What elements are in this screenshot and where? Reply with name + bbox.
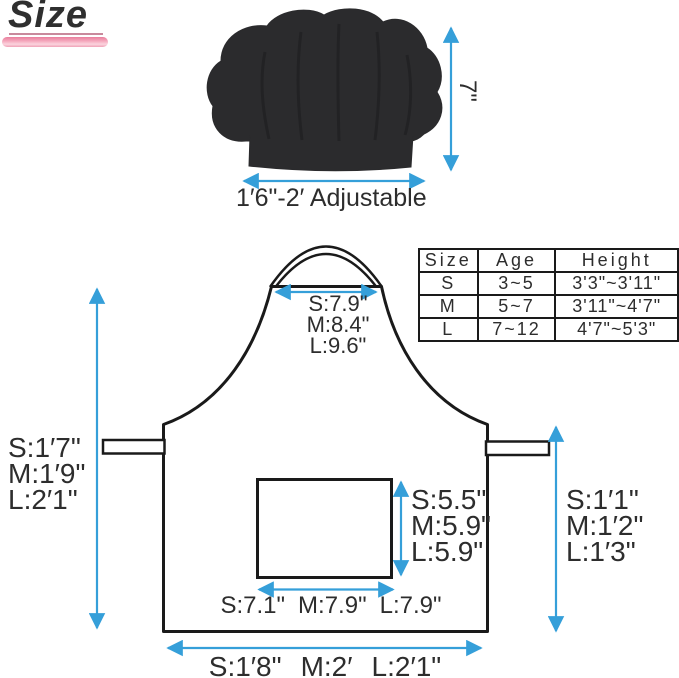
- bottom-width-s: S:1′8": [209, 651, 282, 678]
- skirt-height-l: L:1′3": [566, 539, 643, 565]
- pocket-width-labels: S:7.1" M:7.9" L:7.9": [163, 592, 499, 620]
- bottom-width-l: L:2′1": [372, 651, 442, 678]
- size-cell: S: [419, 272, 478, 295]
- hat-height-label: 7": [453, 80, 481, 102]
- size-table: Size Age Height S 3~5 3'3"~3'11" M 5~7 3…: [418, 248, 679, 342]
- apron-neck-strap-inner: [276, 254, 377, 287]
- neck-width-l: L:9.6": [275, 335, 401, 356]
- size-chart-page: Size 7" 1′6"-2′ Adjustable S:7.9" M:8.4"…: [0, 0, 679, 678]
- apron-left-waist-tie: [103, 440, 165, 454]
- skirt-height-labels: S:1′1" M:1′2" L:1′3": [566, 487, 643, 565]
- age-cell: 7~12: [478, 318, 556, 341]
- size-table-row-s: S 3~5 3'3"~3'11": [419, 272, 678, 295]
- size-table-header-size: Size: [419, 249, 478, 272]
- bottom-width-m: M:2′: [301, 651, 353, 678]
- bib-height-labels: S:1′7" M:1′9" L:2′1": [8, 435, 85, 513]
- height-cell: 4'7"~5'3": [555, 318, 678, 341]
- apron-right-waist-tie: [486, 442, 549, 456]
- hat-width-label: 1′6"-2′ Adjustable: [236, 184, 427, 213]
- bottom-width-labels: S:1′8" M:2′ L:2′1": [140, 651, 510, 678]
- title-underline-thin: [9, 33, 103, 35]
- bib-height-l: L:2′1": [8, 487, 85, 513]
- height-cell: 3'3"~3'11": [555, 272, 678, 295]
- chef-hat-band: [249, 135, 413, 171]
- pocket-width-s: S:7.1": [220, 592, 285, 620]
- size-table-row-m: M 5~7 3'11"~4'7": [419, 295, 678, 318]
- size-cell: L: [419, 318, 478, 341]
- size-table-header-age: Age: [478, 249, 556, 272]
- size-table-header-row: Size Age Height: [419, 249, 678, 272]
- apron-neck-strap: [270, 247, 382, 288]
- neck-width-m: M:8.4": [275, 314, 401, 335]
- size-table-header-height: Height: [555, 249, 678, 272]
- title-underline-bar: [2, 37, 108, 47]
- page-title: Size: [8, 0, 88, 37]
- chef-hat-illustration: [207, 9, 442, 171]
- neck-width-labels: S:7.9" M:8.4" L:9.6": [275, 293, 401, 356]
- apron-pocket: [258, 480, 392, 578]
- pocket-height-labels: S:5.5" M:5.9" L:5.9": [411, 487, 491, 565]
- age-cell: 5~7: [478, 295, 556, 318]
- height-cell: 3'11"~4'7": [555, 295, 678, 318]
- neck-width-s: S:7.9": [275, 293, 401, 314]
- pocket-width-m: M:7.9": [298, 592, 367, 620]
- size-table-row-l: L 7~12 4'7"~5'3": [419, 318, 678, 341]
- age-cell: 3~5: [478, 272, 556, 295]
- pocket-height-l: L:5.9": [411, 539, 491, 565]
- pocket-width-l: L:7.9": [380, 592, 442, 620]
- chef-hat-puff: [207, 9, 442, 141]
- size-cell: M: [419, 295, 478, 318]
